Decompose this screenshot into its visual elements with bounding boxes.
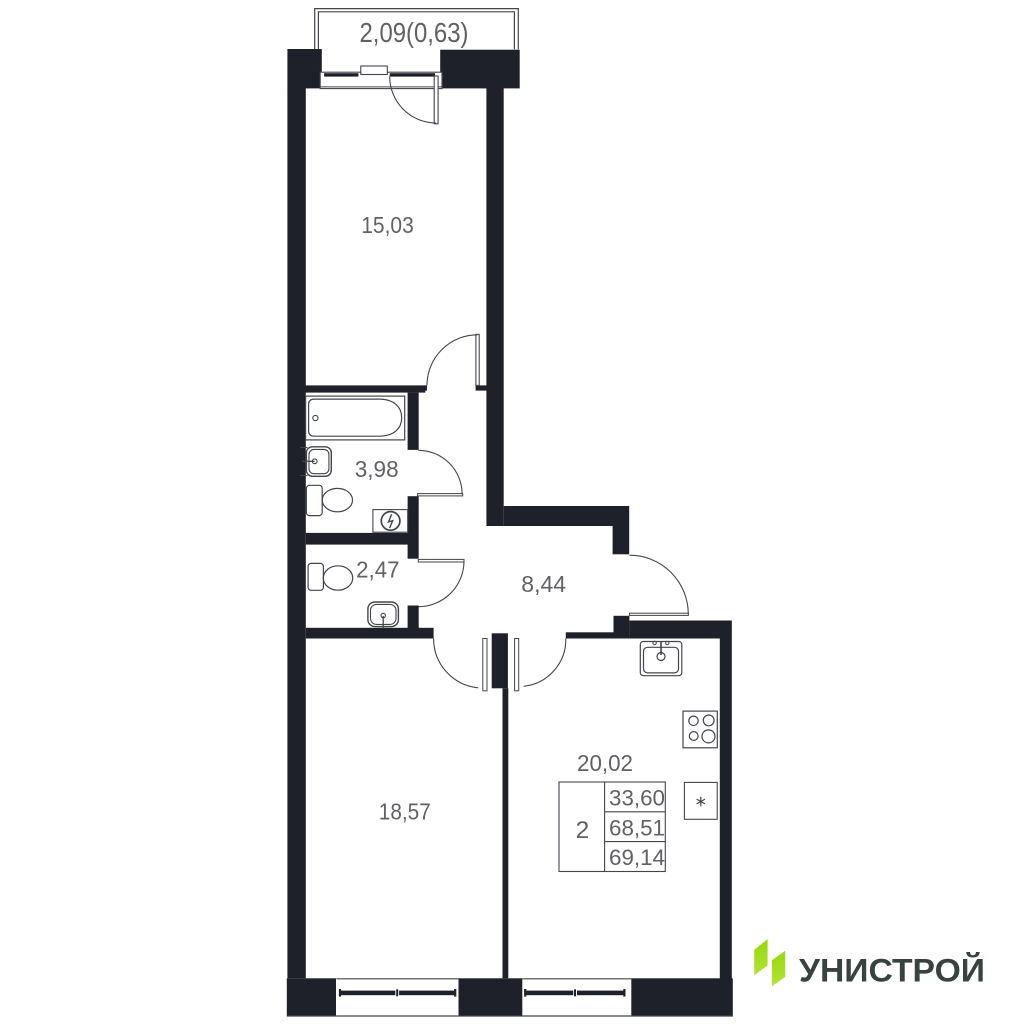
svg-text:15,03: 15,03 xyxy=(361,212,414,238)
svg-text:69,14: 69,14 xyxy=(609,845,665,870)
svg-text:8,44: 8,44 xyxy=(521,571,566,597)
svg-text:68,51: 68,51 xyxy=(609,815,665,840)
svg-text:2,47: 2,47 xyxy=(356,557,399,583)
svg-text:УНИСТРОЙ: УНИСТРОЙ xyxy=(799,952,985,988)
svg-text:20,02: 20,02 xyxy=(577,750,633,776)
svg-text:3,98: 3,98 xyxy=(355,456,399,482)
svg-text:2: 2 xyxy=(576,817,590,844)
svg-text:33,60: 33,60 xyxy=(609,786,665,811)
svg-text:2,09(0,63): 2,09(0,63) xyxy=(360,17,469,48)
svg-text:18,57: 18,57 xyxy=(379,798,431,824)
